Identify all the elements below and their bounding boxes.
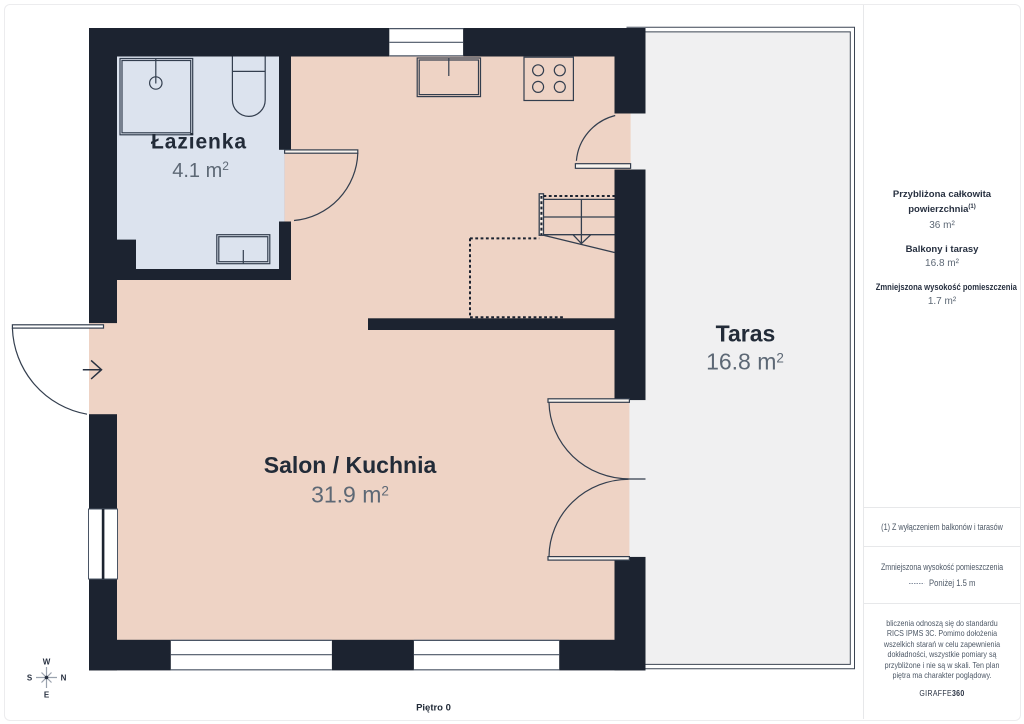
svg-text:Piętro 0: Piętro 0 xyxy=(416,703,451,714)
svg-text:N: N xyxy=(61,674,67,683)
svg-text:4.1 m2: 4.1 m2 xyxy=(172,159,229,182)
svg-text:S: S xyxy=(27,674,33,683)
svg-text:W: W xyxy=(43,658,51,667)
svg-text:Taras: Taras xyxy=(716,321,776,347)
svg-text:31.9 m2: 31.9 m2 xyxy=(311,482,389,508)
svg-text:16.8 m2: 16.8 m2 xyxy=(706,349,784,375)
svg-text:Salon / Kuchnia: Salon / Kuchnia xyxy=(264,452,437,478)
svg-text:E: E xyxy=(44,691,50,700)
svg-text:Łazienka: Łazienka xyxy=(151,131,247,154)
